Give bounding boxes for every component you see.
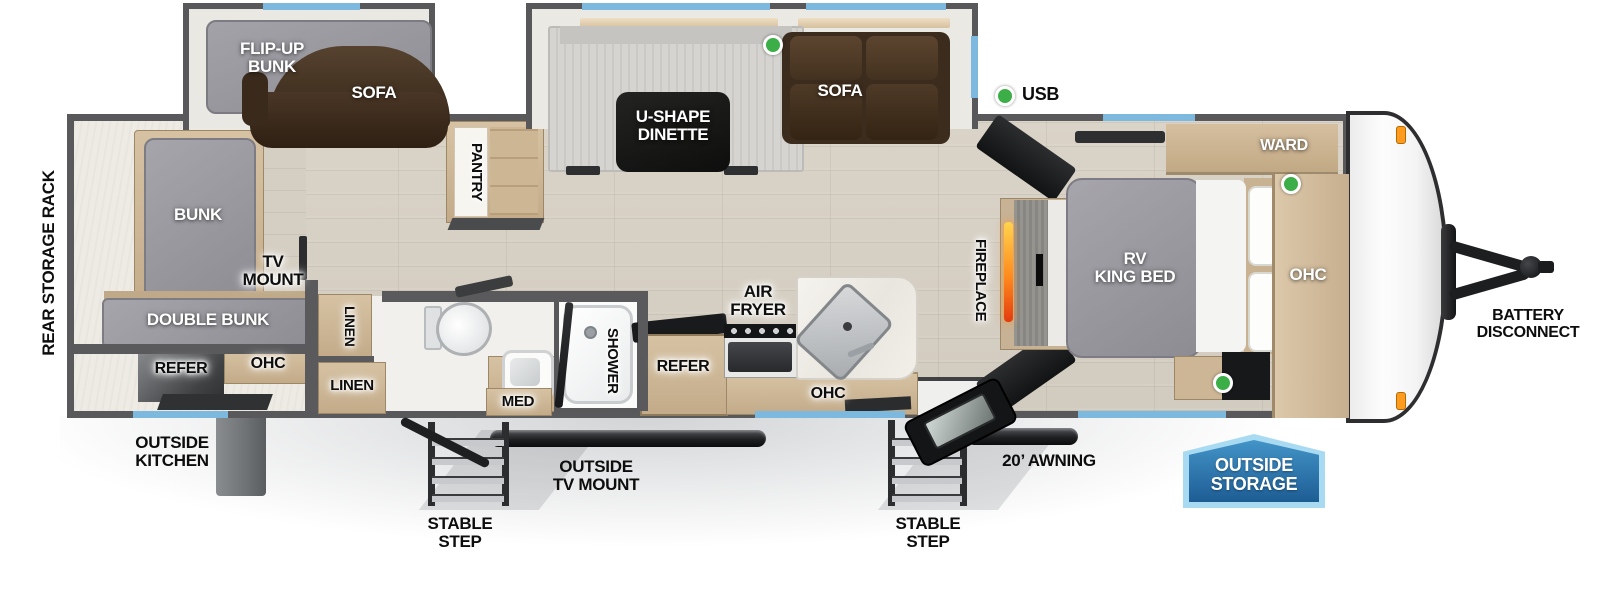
usb-legend-label: USB bbox=[1022, 85, 1072, 104]
rear-refer-platform bbox=[157, 394, 273, 410]
sofa-valance bbox=[798, 18, 950, 28]
hitch-arm-lower bbox=[1448, 268, 1530, 301]
ward-label: WARD bbox=[1244, 138, 1324, 155]
living-sofa-back-cushion-right bbox=[866, 36, 938, 80]
step-right-tread-4 bbox=[892, 494, 962, 502]
window-bedroom bbox=[1103, 114, 1195, 121]
rear-storage-rack-label: REAR STORAGE RACK bbox=[40, 163, 60, 363]
range-knob-strip bbox=[724, 324, 796, 338]
fireplace-flame bbox=[1004, 222, 1013, 322]
tv-mount-label: TV MOUNT bbox=[235, 253, 311, 288]
u-shape-dinette-label: U-SHAPE DINETTE bbox=[616, 108, 730, 144]
bunkroom-sofa-armrest bbox=[242, 72, 268, 126]
rear-refer-label: REFER bbox=[146, 361, 216, 378]
pantry-drawers bbox=[490, 127, 538, 215]
dinette-foot-right bbox=[724, 166, 758, 175]
window-bottom-right bbox=[1078, 411, 1226, 418]
kitchen-refer-label: REFER bbox=[648, 359, 718, 376]
bathroom-top-wall bbox=[382, 291, 644, 302]
outside-kitchen-post bbox=[216, 418, 266, 496]
bunk-label: BUNK bbox=[158, 206, 238, 224]
dinette-seatback bbox=[560, 26, 792, 44]
window-dinette-slide-left bbox=[582, 3, 770, 10]
linen-upper-label: LINEN bbox=[331, 298, 357, 354]
step-right-tread-3 bbox=[892, 476, 962, 484]
linen-lower-label: LINEN bbox=[320, 378, 384, 394]
bath-kitchen-wall bbox=[638, 291, 648, 411]
window-bottom-left bbox=[133, 411, 228, 418]
hitch-pin bbox=[1538, 261, 1554, 273]
hitch-coupler-bar bbox=[1441, 224, 1456, 320]
outside-storage-label: OUTSIDE STORAGE bbox=[1189, 456, 1319, 494]
hitch-arm-upper bbox=[1448, 240, 1530, 273]
med-label: MED bbox=[492, 394, 544, 410]
living-sofa-seat-cushion-right bbox=[866, 84, 938, 140]
window-bunk-slide bbox=[263, 3, 360, 10]
living-sofa-label: SOFA bbox=[805, 82, 875, 100]
stable-step-right-label: STABLE STEP bbox=[876, 515, 980, 550]
fireplace-label: FIREPLACE bbox=[962, 224, 988, 336]
pantry-base-shadow bbox=[448, 218, 545, 230]
bedroom-ohc-label: OHC bbox=[1278, 266, 1338, 284]
usb-indicator-dinette bbox=[763, 35, 783, 55]
window-bottom-middle bbox=[755, 411, 905, 418]
bedroom-tv-mount-bar bbox=[1075, 131, 1165, 143]
bedroom-ohc-cabinet bbox=[1272, 174, 1349, 418]
clearance-light-top bbox=[1396, 126, 1406, 144]
double-bunk-label: DOUBLE BUNK bbox=[118, 311, 298, 329]
shower-label: SHOWER bbox=[594, 314, 620, 408]
battery-disconnect-label: BATTERY DISCONNECT bbox=[1452, 308, 1600, 341]
living-sofa-back-cushion-left bbox=[790, 36, 862, 80]
air-fryer-label: AIR FRYER bbox=[718, 283, 798, 318]
usb-indicator-ward bbox=[1281, 174, 1301, 194]
outside-tv-mount-label: OUTSIDE TV MOUNT bbox=[546, 458, 646, 493]
rear-ohc-label: OHC bbox=[238, 356, 298, 373]
bunkroom-sofa-label: SOFA bbox=[339, 84, 409, 102]
outside-kitchen-label: OUTSIDE KITCHEN bbox=[128, 434, 216, 469]
usb-legend-icon bbox=[995, 86, 1015, 106]
window-dinette-slide-side bbox=[971, 36, 978, 98]
tv-handle bbox=[1036, 254, 1043, 286]
step-left-tread-4 bbox=[432, 494, 504, 502]
step-left-tread-3 bbox=[432, 476, 504, 484]
rv-king-bed-label: RV KING BED bbox=[1080, 250, 1190, 286]
awning-label: 20’ AWNING bbox=[993, 452, 1105, 470]
bunkroom-divider-wall bbox=[74, 344, 312, 354]
front-cap bbox=[1346, 111, 1448, 423]
bath-sink-basin bbox=[510, 358, 540, 386]
stable-step-left-label: STABLE STEP bbox=[408, 515, 512, 550]
range-oven-door bbox=[728, 342, 792, 372]
clearance-light-bottom bbox=[1396, 392, 1406, 410]
dinette-foot-left bbox=[566, 166, 600, 175]
usb-indicator-bed bbox=[1213, 373, 1233, 393]
flip-up-bunk-label: FLIP-UP BUNK bbox=[212, 40, 332, 76]
kitchen-ohc-label: OHC bbox=[798, 386, 858, 403]
outside-tv-mount-bar bbox=[490, 430, 766, 447]
king-bed-sheet bbox=[1196, 180, 1246, 352]
bathroom-left-wall bbox=[305, 280, 318, 411]
linen-divider bbox=[316, 356, 374, 362]
pantry-label: PANTRY bbox=[456, 132, 484, 212]
kitchen-sink-drain bbox=[843, 322, 852, 331]
window-dinette-slide-right bbox=[806, 3, 946, 10]
rv-floorplan: FLIP-UP BUNK SOFA U-SHAPE DINETTE SOFA U… bbox=[0, 0, 1600, 609]
